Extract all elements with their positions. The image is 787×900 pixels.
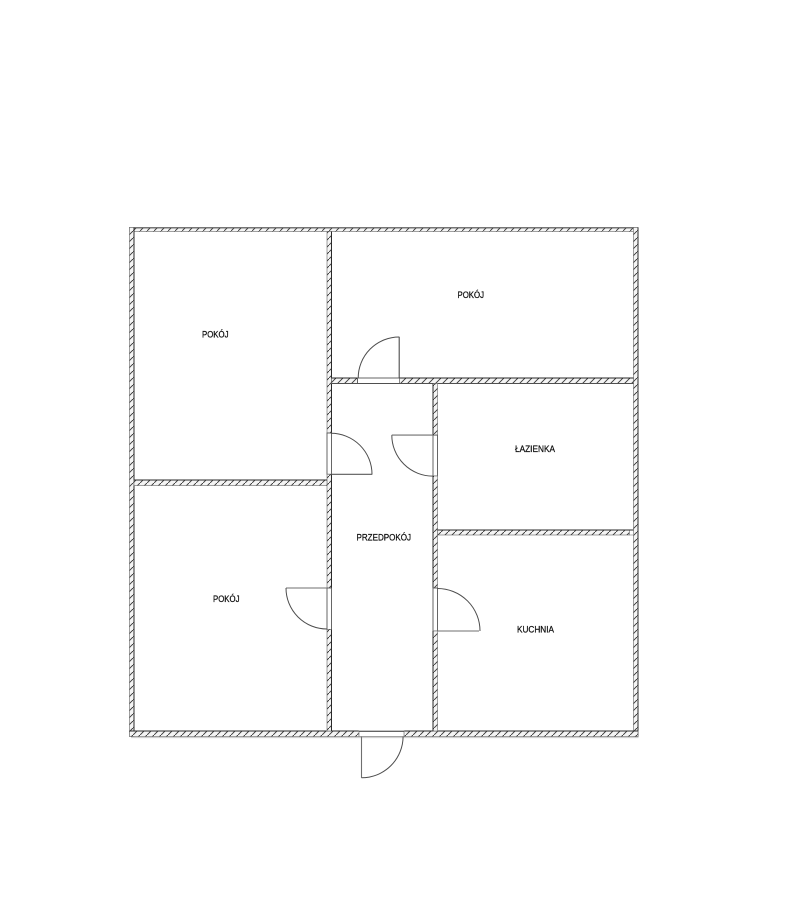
svg-text:POKÓJ: POKÓJ bbox=[202, 330, 229, 340]
svg-text:POKÓJ: POKÓJ bbox=[458, 290, 485, 300]
svg-text:KUCHNIA: KUCHNIA bbox=[517, 625, 555, 635]
svg-text:POKÓJ: POKÓJ bbox=[213, 594, 240, 604]
svg-text:PRZEDPOKÓJ: PRZEDPOKÓJ bbox=[357, 533, 412, 543]
svg-text:ŁAZIENKA: ŁAZIENKA bbox=[515, 444, 556, 454]
